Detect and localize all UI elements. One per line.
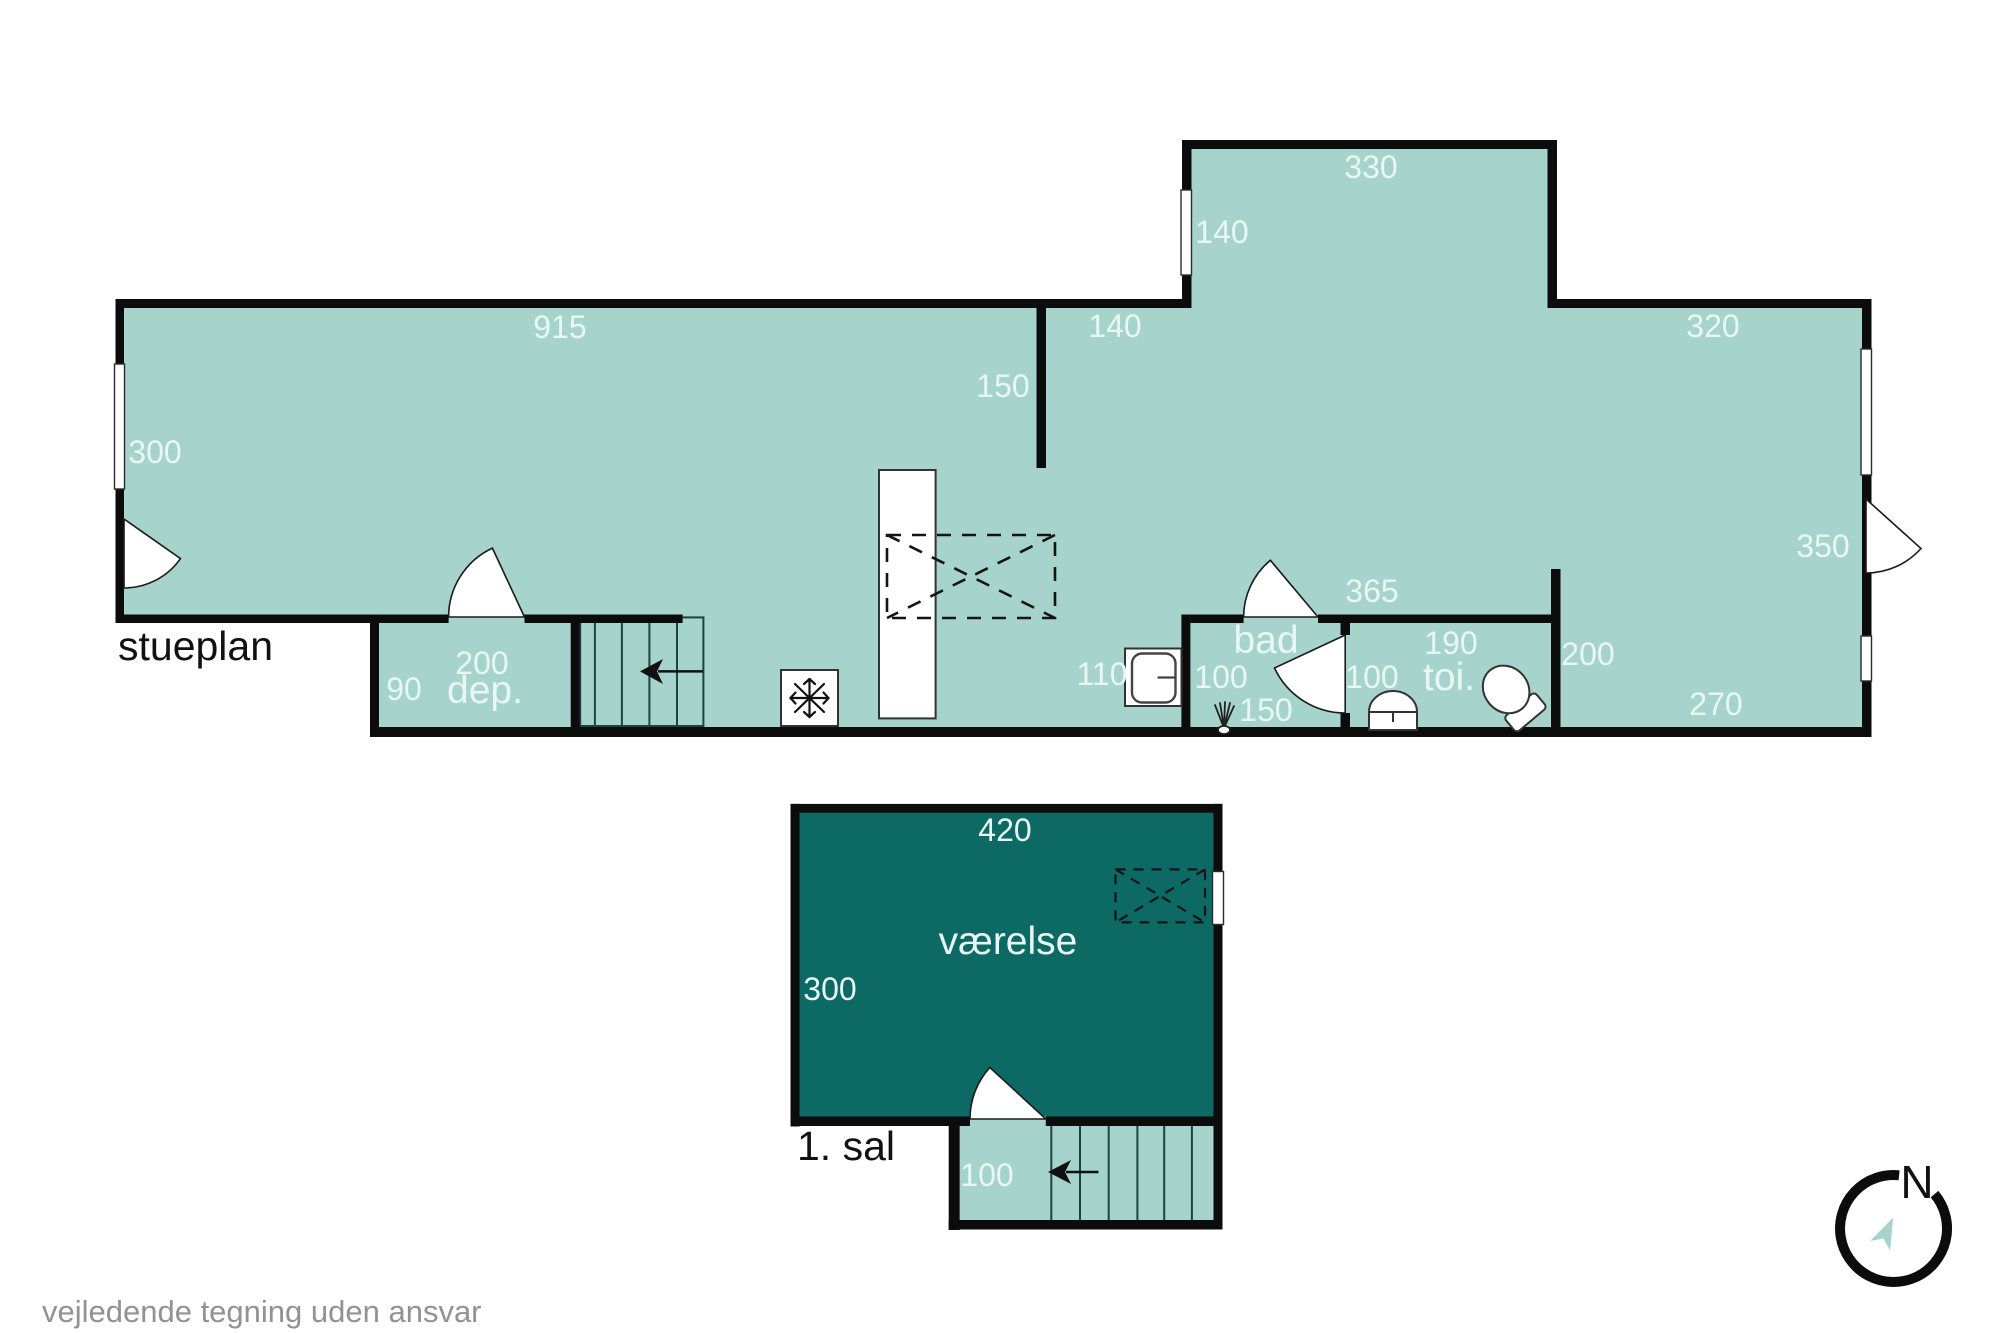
svg-text:100: 100 (960, 1157, 1013, 1193)
svg-text:300: 300 (803, 971, 856, 1007)
svg-text:330: 330 (1344, 149, 1397, 185)
svg-text:toi.: toi. (1423, 656, 1475, 699)
svg-text:110: 110 (1076, 656, 1127, 692)
svg-text:320: 320 (1686, 308, 1739, 344)
svg-text:100: 100 (1194, 659, 1247, 695)
svg-text:stueplan: stueplan (118, 623, 273, 669)
svg-text:420: 420 (978, 812, 1031, 848)
svg-text:dep.: dep. (447, 669, 523, 712)
svg-text:1. sal: 1. sal (797, 1123, 895, 1169)
svg-text:90: 90 (386, 671, 422, 707)
svg-text:140: 140 (1195, 214, 1248, 250)
svg-text:350: 350 (1796, 528, 1849, 564)
svg-text:140: 140 (1088, 308, 1141, 344)
svg-text:150: 150 (1239, 692, 1292, 728)
svg-text:N: N (1900, 1156, 1933, 1208)
svg-text:915: 915 (533, 309, 586, 345)
svg-text:365: 365 (1345, 573, 1398, 609)
svg-text:300: 300 (128, 434, 181, 470)
svg-text:vejledende tegning uden ansvar: vejledende tegning uden ansvar (42, 1294, 482, 1329)
svg-text:værelse: værelse (939, 920, 1078, 963)
svg-text:100: 100 (1345, 659, 1398, 695)
svg-text:200: 200 (1561, 636, 1614, 672)
svg-text:bad: bad (1233, 619, 1298, 662)
svg-text:150: 150 (976, 368, 1029, 404)
svg-text:270: 270 (1689, 686, 1742, 722)
